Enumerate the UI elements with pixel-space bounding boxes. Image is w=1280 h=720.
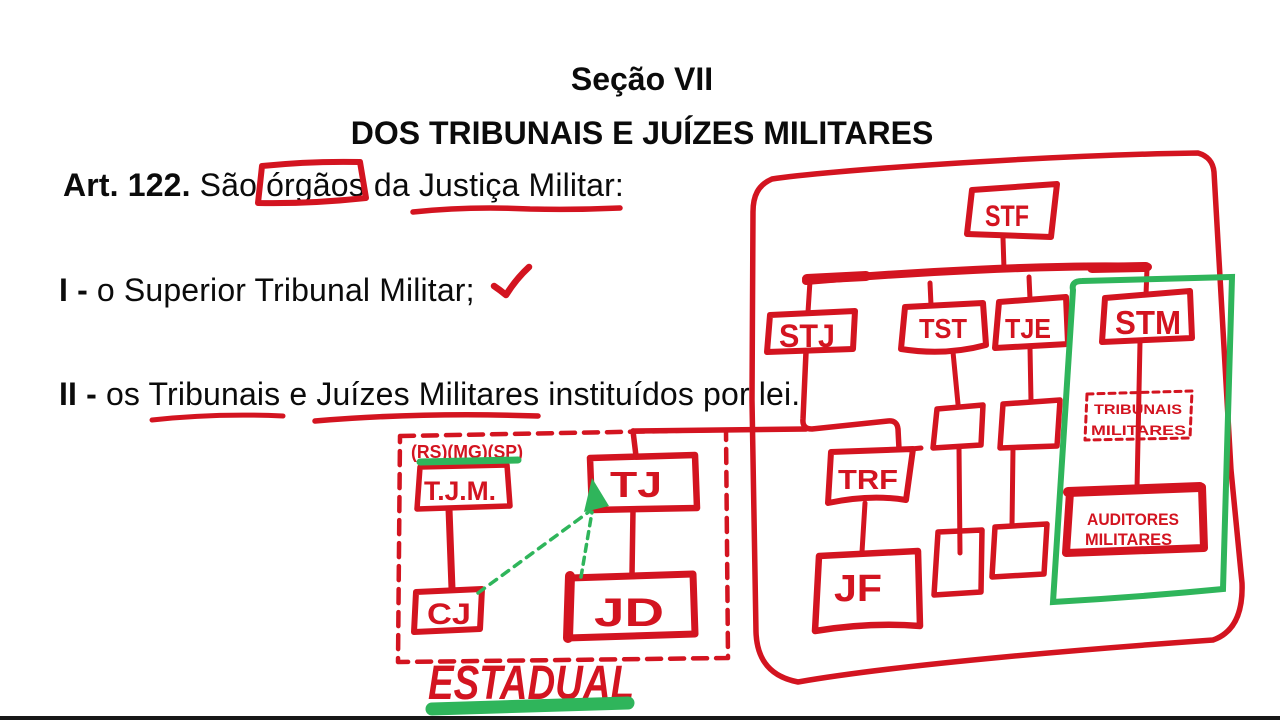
svg-text:JF: JF — [834, 568, 882, 610]
svg-text:MILITARES: MILITARES — [1085, 530, 1172, 549]
svg-text:STJ: STJ — [779, 318, 835, 354]
svg-text:TJ: TJ — [610, 464, 662, 505]
svg-text:AUDITORES: AUDITORES — [1087, 510, 1179, 529]
svg-text:TRF: TRF — [838, 464, 898, 495]
svg-text:STF: STF — [985, 200, 1029, 233]
svg-text:MILITARES: MILITARES — [1091, 422, 1186, 438]
svg-text:TRIBUNAIS: TRIBUNAIS — [1094, 401, 1182, 417]
svg-text:CJ: CJ — [427, 598, 471, 631]
svg-text:TST: TST — [919, 313, 967, 344]
svg-text:STM: STM — [1115, 304, 1181, 341]
svg-text:TJE: TJE — [1005, 313, 1051, 344]
svg-text:T.J.M.: T.J.M. — [424, 476, 496, 506]
svg-text:JD: JD — [594, 591, 664, 635]
